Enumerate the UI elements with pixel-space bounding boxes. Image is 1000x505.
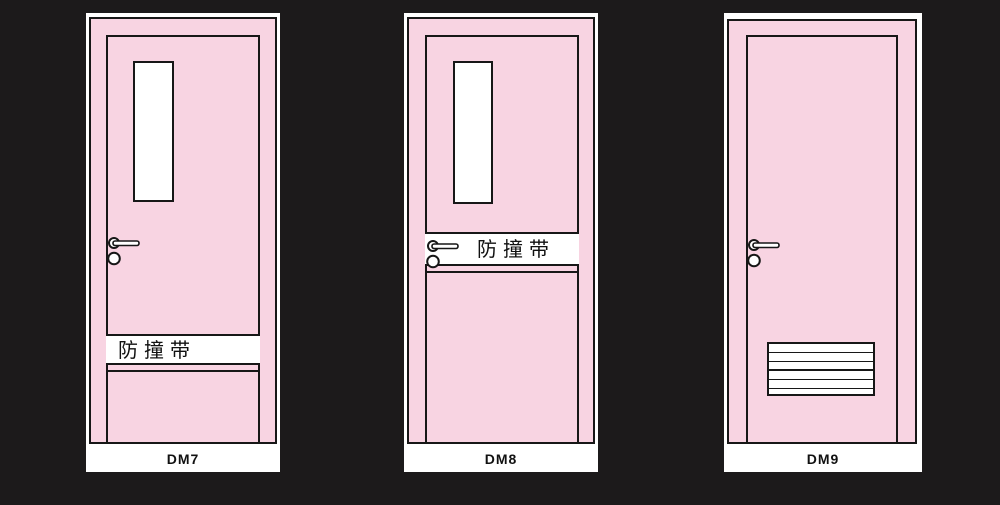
door-unit-dm7: 防撞带 DM7: [86, 13, 280, 472]
louver-slat-line: [769, 388, 873, 389]
anti-collision-band: 防撞带: [106, 334, 260, 365]
louver-slat-line: [769, 369, 873, 371]
door-window: [453, 61, 493, 204]
door-label: DM8: [404, 445, 598, 472]
band-underline: [106, 370, 260, 372]
door-unit-dm8: 防撞带 DM8: [404, 13, 598, 472]
door-handle-icon: [106, 235, 148, 273]
door-handle-icon: [746, 237, 788, 275]
door-models-diagram: 防撞带 DM7 防撞带 DM8: [0, 0, 1000, 505]
vent-louver: [767, 342, 875, 396]
louver-slat-line: [769, 379, 873, 380]
door-unit-dm9: DM9: [724, 13, 922, 472]
anti-collision-band-label: 防撞带: [477, 239, 555, 259]
louver-slat-line: [769, 361, 873, 362]
anti-collision-band-label: 防撞带: [118, 340, 196, 360]
door-handle-icon: [425, 238, 467, 276]
door-label: DM7: [86, 445, 280, 472]
louver-slat-line: [769, 352, 873, 353]
door-window: [133, 61, 174, 202]
door-label: DM9: [724, 445, 922, 472]
